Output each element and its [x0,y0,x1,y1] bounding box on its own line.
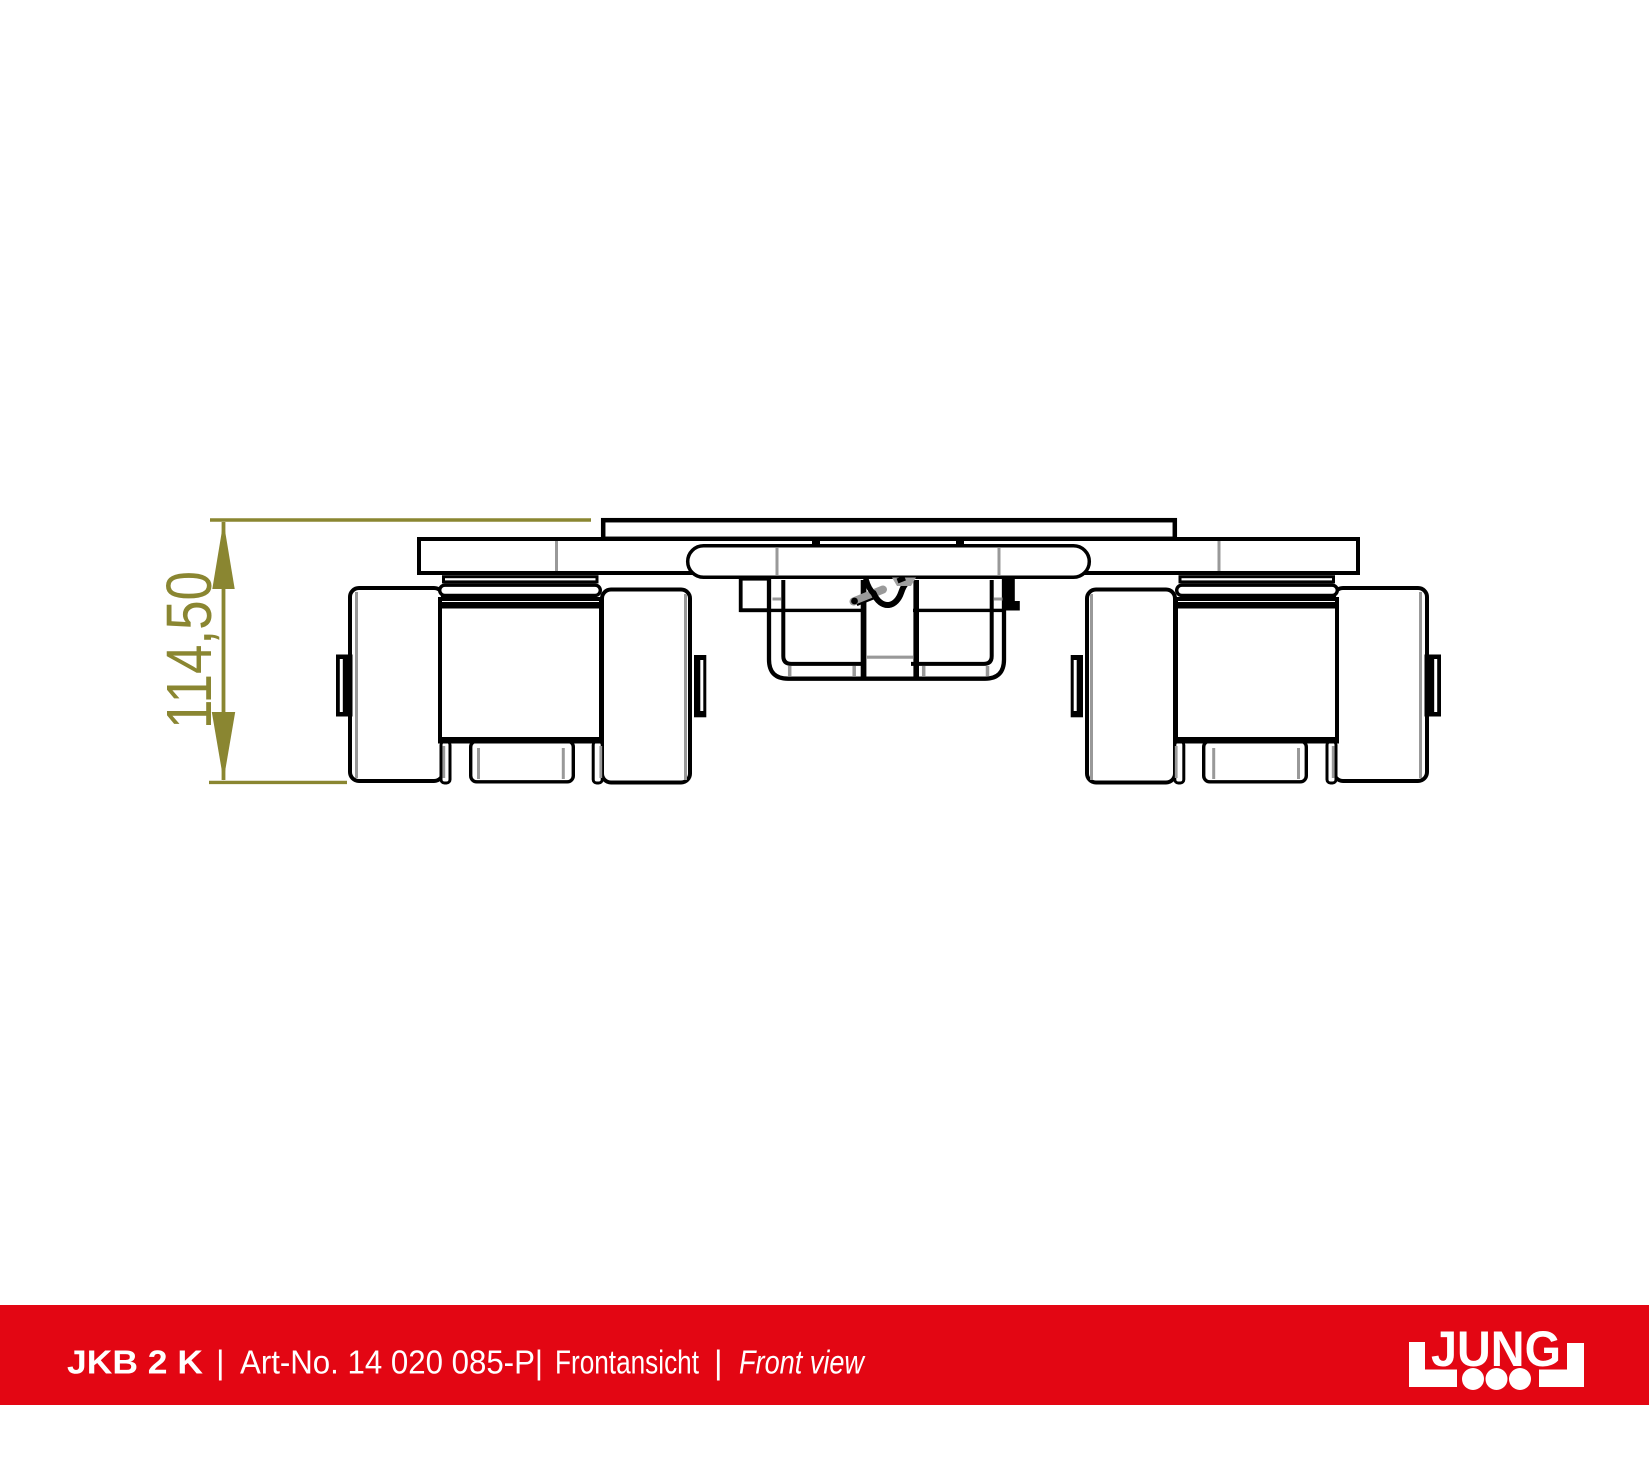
svg-text:JKB 2 K: JKB 2 K [67,1343,203,1380]
svg-text:114,50: 114,50 [153,571,225,729]
svg-text:| Art-No. 14 020 085-P|: | Art-No. 14 020 085-P| Frontansicht | F… [216,1343,866,1380]
